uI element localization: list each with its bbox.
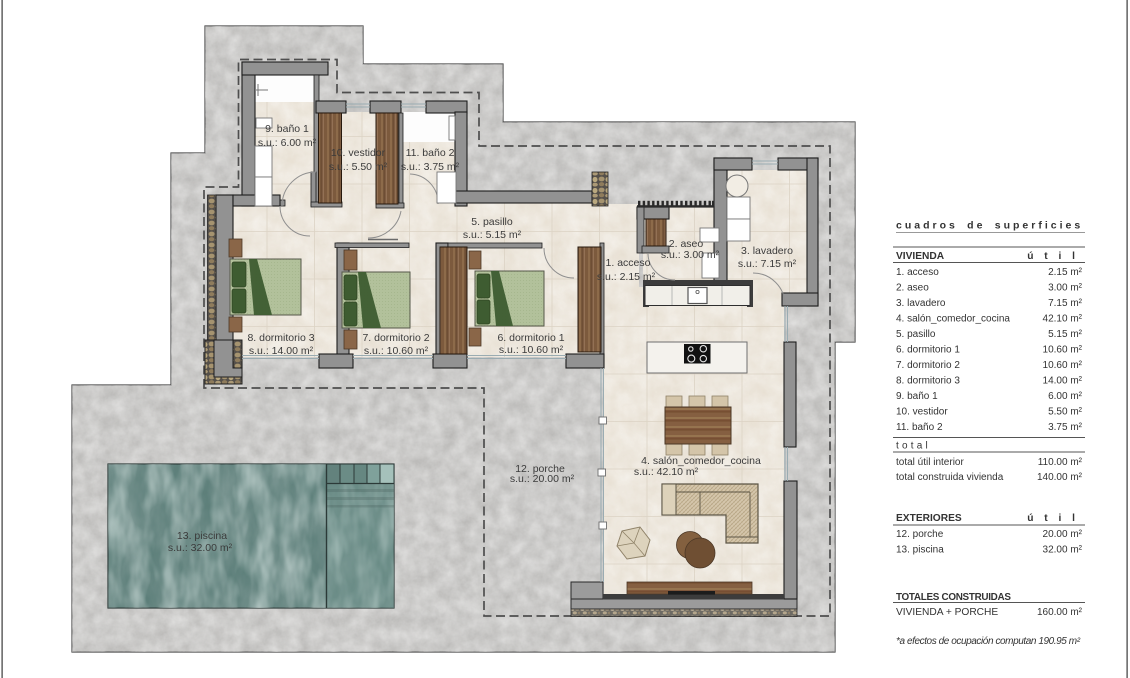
svg-text:3. lavadero: 3. lavadero	[896, 298, 946, 309]
svg-text:8. dormitorio 3: 8. dormitorio 3	[247, 332, 314, 344]
svg-text:13. piscina: 13. piscina	[177, 530, 227, 542]
svg-text:5.50 m²: 5.50 m²	[1048, 407, 1083, 418]
svg-text:140.00 m²: 140.00 m²	[1037, 472, 1083, 483]
svg-text:s.u.: 3.75 m²: s.u.: 3.75 m²	[401, 161, 460, 173]
svg-text:5.15 m²: 5.15 m²	[1048, 329, 1083, 340]
svg-text:ú t i l: ú t i l	[1027, 513, 1079, 524]
svg-text:cuadros de superficies: cuadros de superficies	[896, 220, 1083, 232]
svg-text:3. lavadero: 3. lavadero	[741, 245, 793, 257]
svg-text:4. salón_comedor_cocina: 4. salón_comedor_cocina	[896, 314, 1010, 325]
svg-text:20.00 m²: 20.00 m²	[1043, 529, 1083, 540]
svg-text:6. dormitorio 1: 6. dormitorio 1	[896, 345, 960, 356]
svg-text:10. vestidor: 10. vestidor	[331, 147, 386, 159]
svg-text:TOTALES CONSTRUIDAS: TOTALES CONSTRUIDAS	[896, 592, 1011, 603]
svg-text:42.10 m²: 42.10 m²	[1043, 314, 1083, 325]
svg-text:s.u.: 42.10 m²: s.u.: 42.10 m²	[634, 466, 699, 478]
svg-text:7.15 m²: 7.15 m²	[1048, 298, 1083, 309]
svg-text:7. dormitorio 2: 7. dormitorio 2	[896, 360, 960, 371]
svg-text:11. baño 2: 11. baño 2	[896, 422, 943, 433]
svg-text:14.00 m²: 14.00 m²	[1043, 376, 1083, 387]
svg-text:total construida vivienda: total construida vivienda	[896, 472, 1004, 483]
svg-text:8. dormitorio 3: 8. dormitorio 3	[896, 376, 960, 387]
svg-text:6. dormitorio 1: 6. dormitorio 1	[497, 332, 564, 344]
svg-text:*a efectos de ocupación comput: *a efectos de ocupación computan 190.95 …	[896, 636, 1081, 647]
svg-text:13. piscina: 13. piscina	[896, 545, 944, 556]
svg-text:5. pasillo: 5. pasillo	[471, 216, 513, 228]
svg-text:12. porche: 12. porche	[896, 529, 944, 540]
svg-text:s.u.: 14.00 m²: s.u.: 14.00 m²	[249, 345, 314, 357]
svg-text:5. pasillo: 5. pasillo	[896, 329, 936, 340]
svg-text:total útil interior: total útil interior	[896, 457, 964, 468]
svg-text:160.00 m²: 160.00 m²	[1037, 607, 1083, 618]
svg-text:total: total	[896, 441, 931, 452]
svg-text:s.u.: 6.00 m²: s.u.: 6.00 m²	[258, 137, 317, 149]
svg-text:s.u.: 32.00 m²: s.u.: 32.00 m²	[168, 542, 233, 554]
svg-text:9. baño 1: 9. baño 1	[265, 123, 309, 135]
svg-text:s.u.: 10.60 m²: s.u.: 10.60 m²	[364, 345, 429, 357]
svg-text:s.u.: 20.00 m²: s.u.: 20.00 m²	[510, 473, 575, 485]
svg-text:6.00 m²: 6.00 m²	[1048, 391, 1083, 402]
svg-text:s.u.: 7.15 m²: s.u.: 7.15 m²	[738, 258, 797, 270]
svg-text:3.00 m²: 3.00 m²	[1048, 283, 1083, 294]
svg-text:s.u.: 3.00 m²: s.u.: 3.00 m²	[661, 249, 720, 261]
svg-text:s.u.: 5.50 m²: s.u.: 5.50 m²	[329, 161, 388, 173]
svg-text:ú t i l: ú t i l	[1027, 251, 1079, 262]
svg-text:10.60 m²: 10.60 m²	[1043, 345, 1083, 356]
svg-text:2.15 m²: 2.15 m²	[1048, 267, 1083, 278]
svg-text:9. baño 1: 9. baño 1	[896, 391, 938, 402]
svg-text:11. baño 2: 11. baño 2	[406, 147, 455, 159]
svg-text:s.u.: 5.15 m²: s.u.: 5.15 m²	[463, 229, 522, 241]
svg-text:EXTERIORES: EXTERIORES	[896, 513, 962, 524]
svg-text:1. acceso: 1. acceso	[606, 257, 651, 269]
svg-text:1. acceso: 1. acceso	[896, 267, 939, 278]
svg-text:s.u.: 10.60 m²: s.u.: 10.60 m²	[499, 344, 564, 356]
svg-text:10. vestidor: 10. vestidor	[896, 407, 948, 418]
svg-text:7. dormitorio 2: 7. dormitorio 2	[362, 332, 429, 344]
svg-text:2. aseo: 2. aseo	[896, 283, 929, 294]
svg-text:10.60 m²: 10.60 m²	[1043, 360, 1083, 371]
svg-text:110.00 m²: 110.00 m²	[1038, 457, 1083, 468]
svg-text:VIVIENDA + PORCHE: VIVIENDA + PORCHE	[896, 607, 998, 618]
svg-text:3.75 m²: 3.75 m²	[1048, 422, 1083, 433]
svg-text:s.u.: 2.15 m²: s.u.: 2.15 m²	[597, 271, 656, 283]
svg-text:VIVIENDA: VIVIENDA	[896, 251, 945, 262]
svg-text:32.00 m²: 32.00 m²	[1043, 545, 1083, 556]
